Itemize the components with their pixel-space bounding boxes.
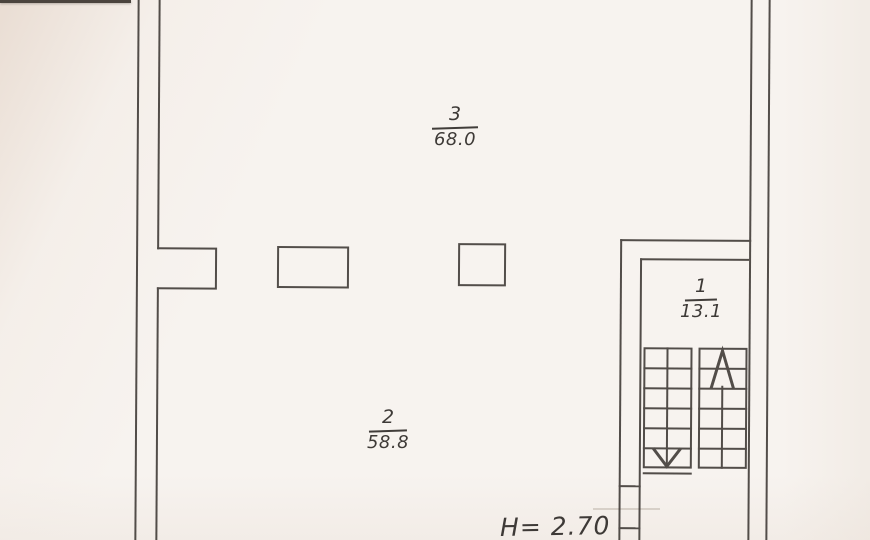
floor-plan-photo: 3 68.0 2 58.8 1 13.1 H= 2.70: [0, 0, 870, 540]
room-2-area: 58.8: [367, 434, 409, 453]
room-1-area: 13.1: [680, 303, 722, 322]
room-3-area: 68.0: [434, 131, 476, 150]
stair-flight-up: [699, 349, 747, 468]
stair-hall-top-wall-inner-line: [641, 259, 748, 260]
column-pier-1: [278, 247, 348, 287]
left-wall-inner-lower-line: [156, 288, 158, 540]
stair-partition-outer-line: [619, 240, 621, 540]
floor-plan-drawing: [0, 0, 870, 540]
room-2-number: 2: [382, 408, 394, 428]
room-label-3: 3 68.0: [432, 105, 478, 150]
stair-flight-down: [644, 348, 692, 473]
room-label-1: 1 13.1: [680, 277, 722, 322]
ceiling-height-label: H= 2.70: [500, 511, 611, 540]
right-wall-inner-line: [748, 0, 751, 540]
room-3-number: 3: [449, 105, 461, 125]
plan-lines: [135, 0, 769, 540]
stair-hall-top-wall-outer-line: [621, 240, 750, 241]
left-wall-outer-line: [135, 0, 138, 540]
stair-partition-inner-line: [639, 259, 641, 540]
right-wall-outer-line: [766, 0, 769, 540]
room-label-2: 2 58.8: [367, 408, 409, 453]
column-pier-2: [459, 244, 505, 285]
room-1-number: 1: [695, 277, 707, 297]
left-wall-inner-upper-line: [158, 0, 160, 248]
left-wall-pier: [158, 248, 216, 288]
stair-flight-down-centerline: [667, 348, 668, 467]
